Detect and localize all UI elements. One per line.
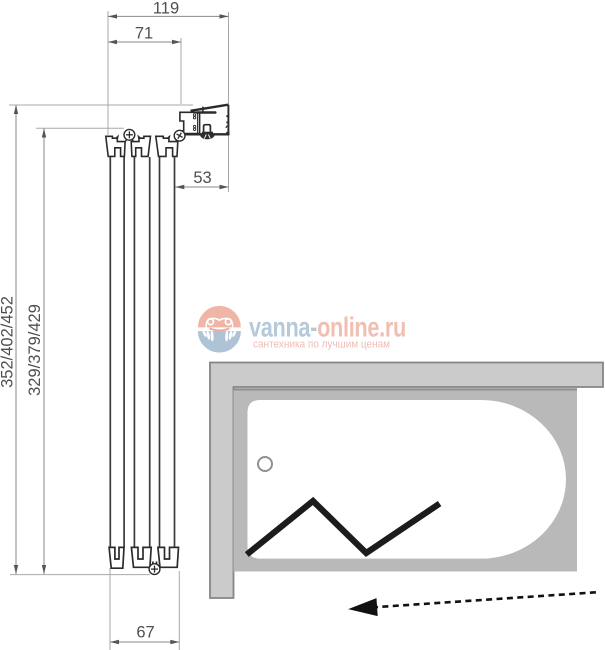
svg-text:329/379/429: 329/379/429	[26, 304, 44, 396]
svg-text:71: 71	[135, 25, 153, 43]
svg-text:352/402/452: 352/402/452	[0, 296, 17, 388]
svg-text:67: 67	[136, 624, 154, 642]
svg-text:сантехника по лучшим ценам: сантехника по лучшим ценам	[253, 338, 390, 351]
svg-text:119: 119	[153, 0, 179, 18]
svg-text:53: 53	[193, 169, 211, 187]
